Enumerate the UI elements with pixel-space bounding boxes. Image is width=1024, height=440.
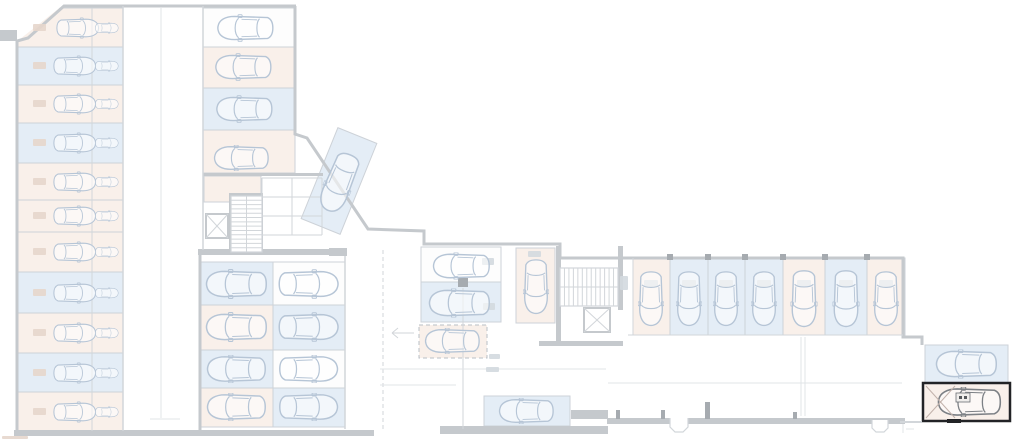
elevator-icon xyxy=(584,308,610,332)
stairs-icon xyxy=(560,268,618,306)
car-icon xyxy=(937,350,997,379)
floor-drain-icon xyxy=(872,420,888,432)
car-icon xyxy=(751,272,777,326)
car-icon xyxy=(280,393,338,421)
car-icon xyxy=(95,60,118,71)
structural-column xyxy=(864,254,870,260)
car-icon xyxy=(523,260,549,314)
floor-drain-icon xyxy=(670,418,688,432)
space-number-faint xyxy=(489,354,500,359)
structural-column xyxy=(661,410,665,419)
car-icon xyxy=(833,271,860,327)
space-number-faint xyxy=(33,369,46,376)
structural-column xyxy=(822,254,828,260)
car-icon xyxy=(676,272,702,326)
car-icon xyxy=(95,246,118,257)
wall-segment xyxy=(539,341,623,346)
floor-plan-canvas xyxy=(0,0,1024,440)
car-icon xyxy=(215,145,269,171)
car-icon xyxy=(95,367,118,378)
space-number-faint xyxy=(33,408,46,415)
plan-details-layer xyxy=(0,6,1000,439)
car-icon xyxy=(54,133,96,153)
stairs-icon xyxy=(231,196,262,252)
floor-line xyxy=(392,328,398,333)
car-icon xyxy=(95,137,118,148)
floor-line xyxy=(392,333,398,338)
structural-column xyxy=(458,278,468,287)
car-icon xyxy=(54,56,96,76)
car-icon xyxy=(280,355,338,383)
structural-column xyxy=(742,254,748,260)
plate-digit-mark xyxy=(964,396,967,399)
car-icon xyxy=(207,270,267,299)
plate-digit-mark xyxy=(959,396,962,399)
car-icon xyxy=(57,18,99,38)
car-icon xyxy=(426,328,480,354)
structural-column xyxy=(667,254,673,260)
car-icon xyxy=(207,313,267,342)
outer-walls xyxy=(17,6,922,436)
car-icon xyxy=(95,22,118,33)
car-icon xyxy=(218,15,273,42)
car-icon xyxy=(713,272,739,326)
structural-column xyxy=(616,410,620,419)
car-icon xyxy=(54,94,96,114)
car-icon xyxy=(95,98,118,109)
car-icon xyxy=(638,272,664,326)
car-icon xyxy=(95,327,118,338)
wall-segment xyxy=(198,249,347,255)
wall-segment xyxy=(440,426,608,434)
space-number-faint xyxy=(33,329,46,336)
wall-segment xyxy=(0,30,17,41)
wall-segment xyxy=(14,430,374,436)
car-icon xyxy=(54,323,96,343)
car-icon xyxy=(54,206,96,226)
space-number-faint xyxy=(33,100,46,107)
car-icon xyxy=(95,287,118,298)
car-icon xyxy=(500,398,554,424)
wall-segment xyxy=(329,248,347,256)
space-number-faint xyxy=(620,276,628,290)
space-number-faint xyxy=(486,367,499,372)
space-number-faint xyxy=(33,248,46,255)
car-icon xyxy=(217,96,272,123)
elevator-icon xyxy=(206,214,228,238)
space-number-faint xyxy=(33,289,46,296)
car-icon xyxy=(54,172,96,192)
space-number-faint xyxy=(2,436,28,439)
structural-column xyxy=(705,402,710,419)
wall-segment xyxy=(571,410,608,419)
car-icon xyxy=(430,289,490,318)
car-icon xyxy=(216,54,271,81)
car-icon xyxy=(95,210,118,221)
space-number-faint xyxy=(528,251,541,257)
space-number-plate xyxy=(956,393,970,402)
structural-column xyxy=(705,254,711,260)
wall-segment xyxy=(203,173,323,176)
structural-column xyxy=(793,412,797,419)
car-icon xyxy=(54,402,96,422)
floor-plan-stage xyxy=(0,0,1024,440)
car-icon xyxy=(434,253,490,280)
car-icon xyxy=(95,176,118,187)
car-icon xyxy=(791,271,818,327)
car-icon xyxy=(54,363,96,383)
car-icon xyxy=(279,270,338,299)
structural-column xyxy=(780,254,786,260)
wall-segment xyxy=(607,418,905,424)
space-number-faint xyxy=(33,24,46,31)
highlight-entry-tick xyxy=(947,419,961,423)
space-number-faint xyxy=(33,178,46,185)
space-number-faint xyxy=(33,139,46,146)
car-icon xyxy=(208,355,266,383)
car-icon xyxy=(279,313,338,342)
car-icon xyxy=(54,242,96,262)
car-icon xyxy=(208,393,266,421)
car-icon xyxy=(873,272,899,326)
car-icon xyxy=(95,406,118,417)
car-icon xyxy=(54,283,96,303)
space-number-faint xyxy=(33,212,46,219)
parking-spaces-layer xyxy=(17,8,1010,432)
space-number-faint xyxy=(33,62,46,69)
